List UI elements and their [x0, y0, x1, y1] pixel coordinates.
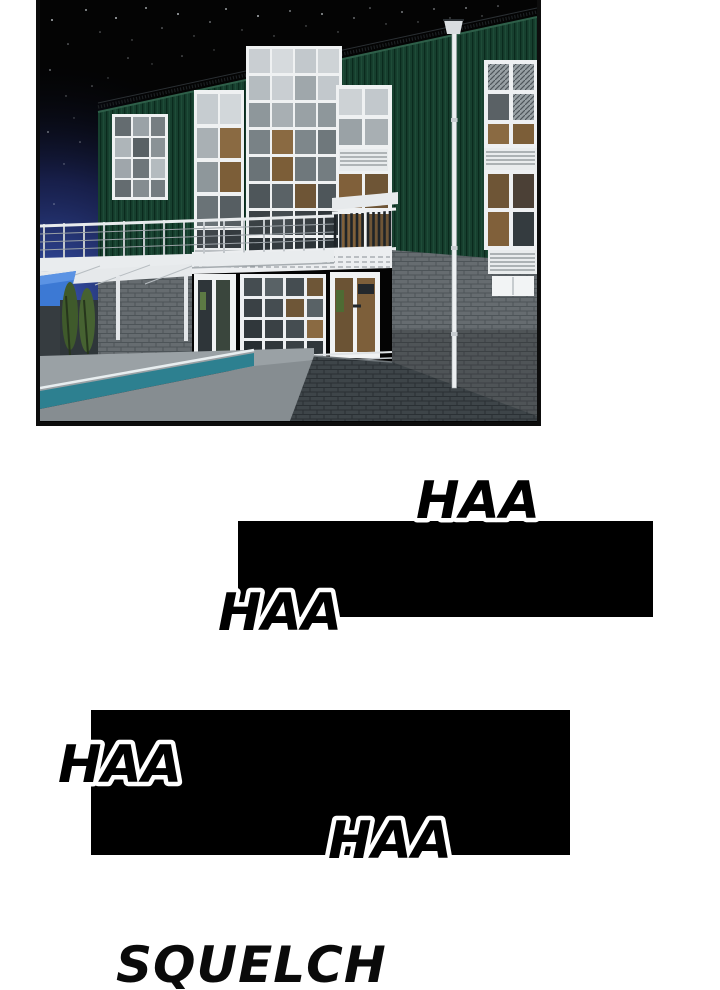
- sfx-squelch-text: SQUELCH: [116, 936, 387, 990]
- sfx-haa-mid-text: HAA: [218, 583, 342, 643]
- sfx-haa-bottom: HAA: [316, 808, 466, 880]
- right-window-section: [484, 60, 537, 250]
- panel-frame: [36, 0, 541, 426]
- comic-page: HAA HAA HAA HAA SQUELCH: [0, 0, 720, 990]
- sfx-haa-left-text: HAA: [58, 735, 182, 795]
- upper-left-window: [112, 114, 168, 200]
- sfx-haa-top: HAA: [404, 468, 554, 540]
- sfx-haa-bottom-text: HAA: [328, 811, 452, 871]
- sfx-haa-top-text: HAA: [416, 471, 540, 531]
- sfx-squelch: SQUELCH: [108, 936, 398, 990]
- building-panel-art: [40, 0, 537, 422]
- sfx-haa-left: HAA: [46, 732, 196, 804]
- sfx-haa-mid: HAA: [206, 580, 356, 652]
